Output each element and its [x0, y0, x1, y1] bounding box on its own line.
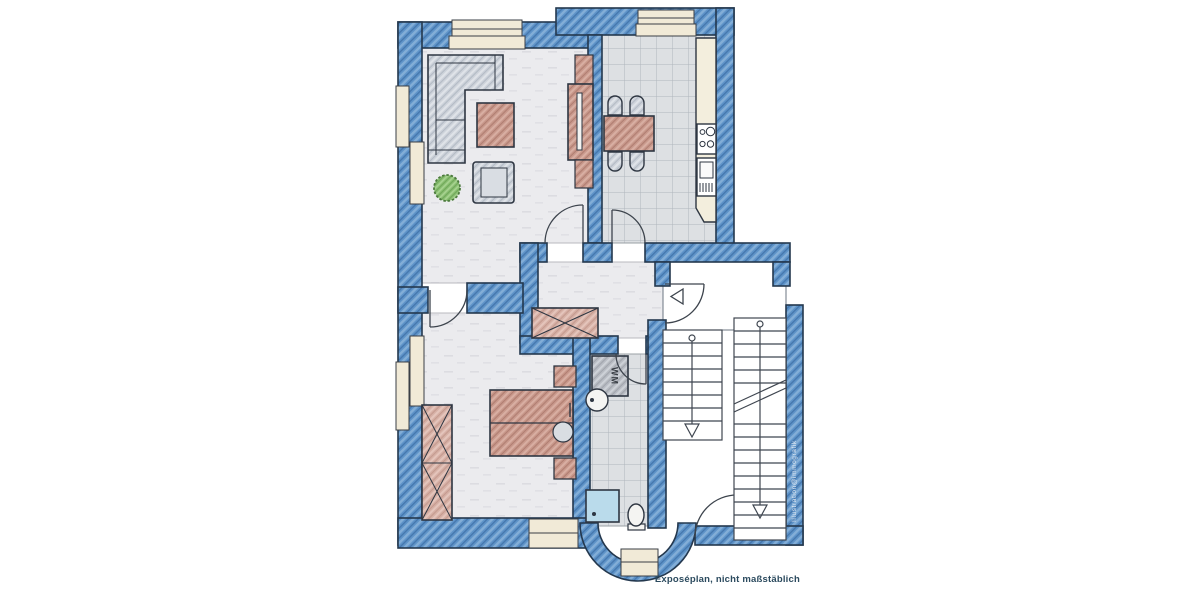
- stair-flight-left: [663, 330, 722, 440]
- oven: [697, 158, 716, 196]
- watermark-text: Illustration@immografik: [791, 440, 798, 522]
- floor-plan-drawing: WM: [0, 0, 1200, 600]
- window-bedroom-bottom: [529, 519, 578, 548]
- wall-hall-top-c: [645, 243, 790, 262]
- pillow: [553, 422, 573, 442]
- wall-stub-landing-left: [655, 262, 670, 286]
- floor-plan-page: WM: [0, 0, 1200, 600]
- plan-caption: Exposéplan, nicht maßstäblich: [655, 574, 800, 585]
- wall-living-bedroom-a: [398, 287, 428, 313]
- bedroom-wardrobe: [422, 405, 452, 520]
- wall-stub-landing-right: [773, 262, 790, 286]
- nightstand-bottom: [554, 458, 576, 479]
- armchair: [473, 162, 514, 203]
- sink: [586, 389, 608, 411]
- washing-machine-label: WM: [610, 367, 620, 385]
- wall-hall-top-b: [583, 243, 612, 262]
- plant: [434, 175, 460, 201]
- toilet: [628, 504, 645, 530]
- hallway-wardrobe: [532, 308, 598, 338]
- cooktop: [697, 124, 716, 154]
- window-living-top: [449, 20, 525, 49]
- shower: [586, 490, 619, 522]
- coffee-table: [477, 103, 514, 147]
- hallway: [532, 308, 598, 338]
- dining-table: [604, 116, 654, 151]
- tv-screen: [577, 93, 582, 150]
- wall-right-kitchen: [716, 8, 734, 256]
- double-bed: [490, 390, 573, 456]
- nightstand-top: [554, 366, 576, 387]
- window-bay: [621, 549, 658, 576]
- window-kitchen-top: [636, 10, 696, 36]
- stair-flight-right: [734, 318, 786, 540]
- stairwell: [663, 318, 786, 540]
- wall-living-bedroom-b: [467, 283, 523, 313]
